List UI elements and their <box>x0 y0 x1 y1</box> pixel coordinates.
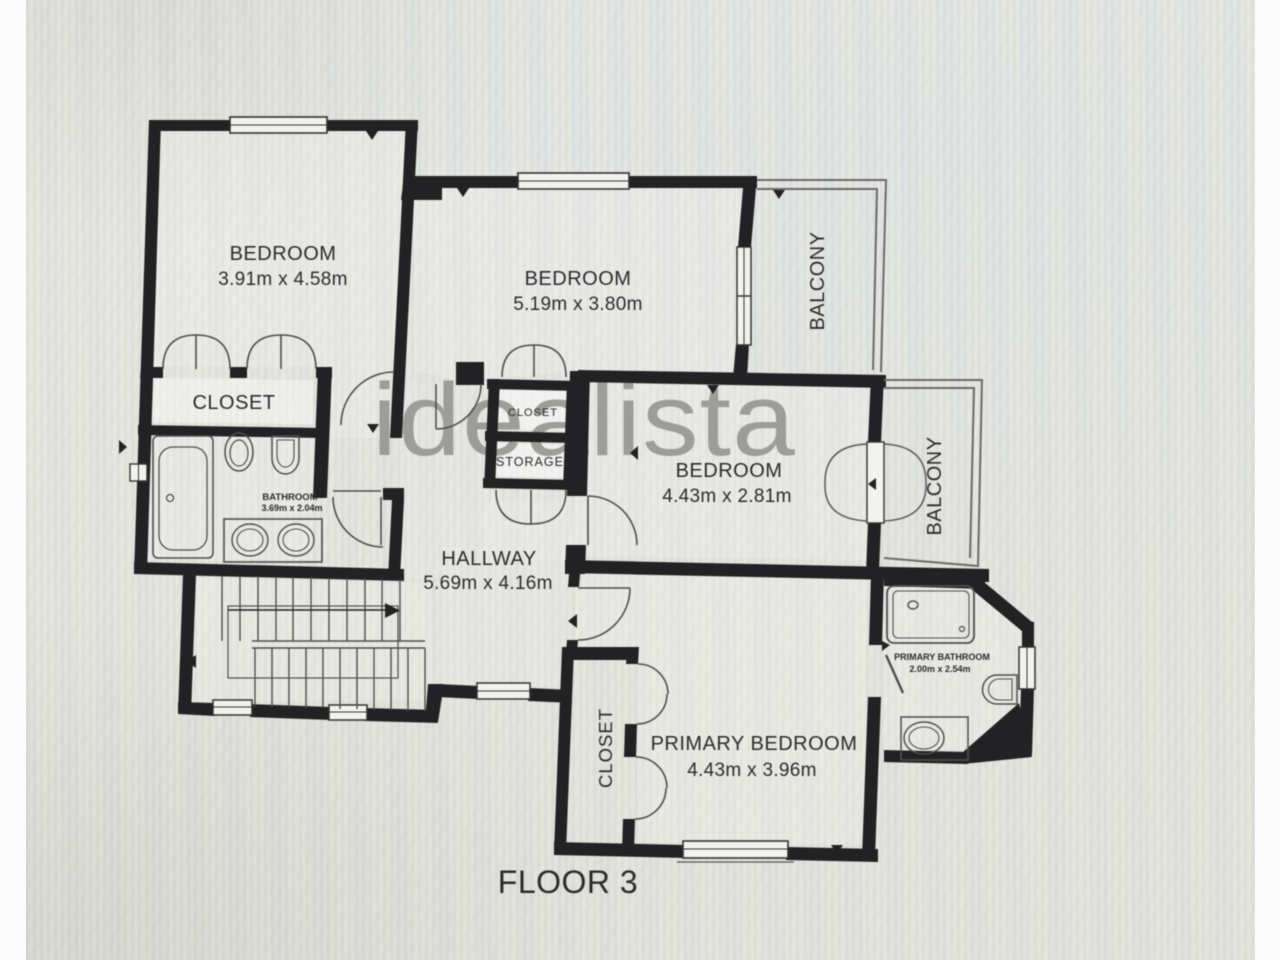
svg-text:FLOOR 3: FLOOR 3 <box>498 864 638 900</box>
svg-text:4.43m x 3.96m: 4.43m x 3.96m <box>687 760 817 781</box>
svg-text:HALLWAY: HALLWAY <box>441 548 536 570</box>
svg-text:BEDROOM: BEDROOM <box>676 460 783 482</box>
svg-text:PRIMARY BATHROOM: PRIMARY BATHROOM <box>894 652 990 662</box>
svg-text:2.00m x 2.54m: 2.00m x 2.54m <box>909 664 970 674</box>
svg-text:BALCONY: BALCONY <box>924 436 946 535</box>
svg-text:BEDROOM: BEDROOM <box>230 243 337 265</box>
svg-text:STORAGE: STORAGE <box>496 455 564 469</box>
svg-text:CLOSET: CLOSET <box>192 392 275 414</box>
svg-text:PRIMARY BEDROOM: PRIMARY BEDROOM <box>651 733 858 755</box>
svg-text:3.91m x 4.58m: 3.91m x 4.58m <box>218 269 348 290</box>
svg-text:3.69m x 2.04m: 3.69m x 2.04m <box>261 503 322 513</box>
svg-text:CLOSET: CLOSET <box>595 708 616 788</box>
svg-text:4.43m x 2.81m: 4.43m x 2.81m <box>662 486 792 507</box>
svg-text:BATHROOM: BATHROOM <box>262 492 317 503</box>
svg-text:CLOSET: CLOSET <box>508 407 558 419</box>
svg-text:BEDROOM: BEDROOM <box>525 268 632 290</box>
svg-text:BALCONY: BALCONY <box>807 231 829 330</box>
svg-text:5.69m x 4.16m: 5.69m x 4.16m <box>423 573 553 594</box>
svg-text:5.19m x 3.80m: 5.19m x 3.80m <box>513 294 643 315</box>
